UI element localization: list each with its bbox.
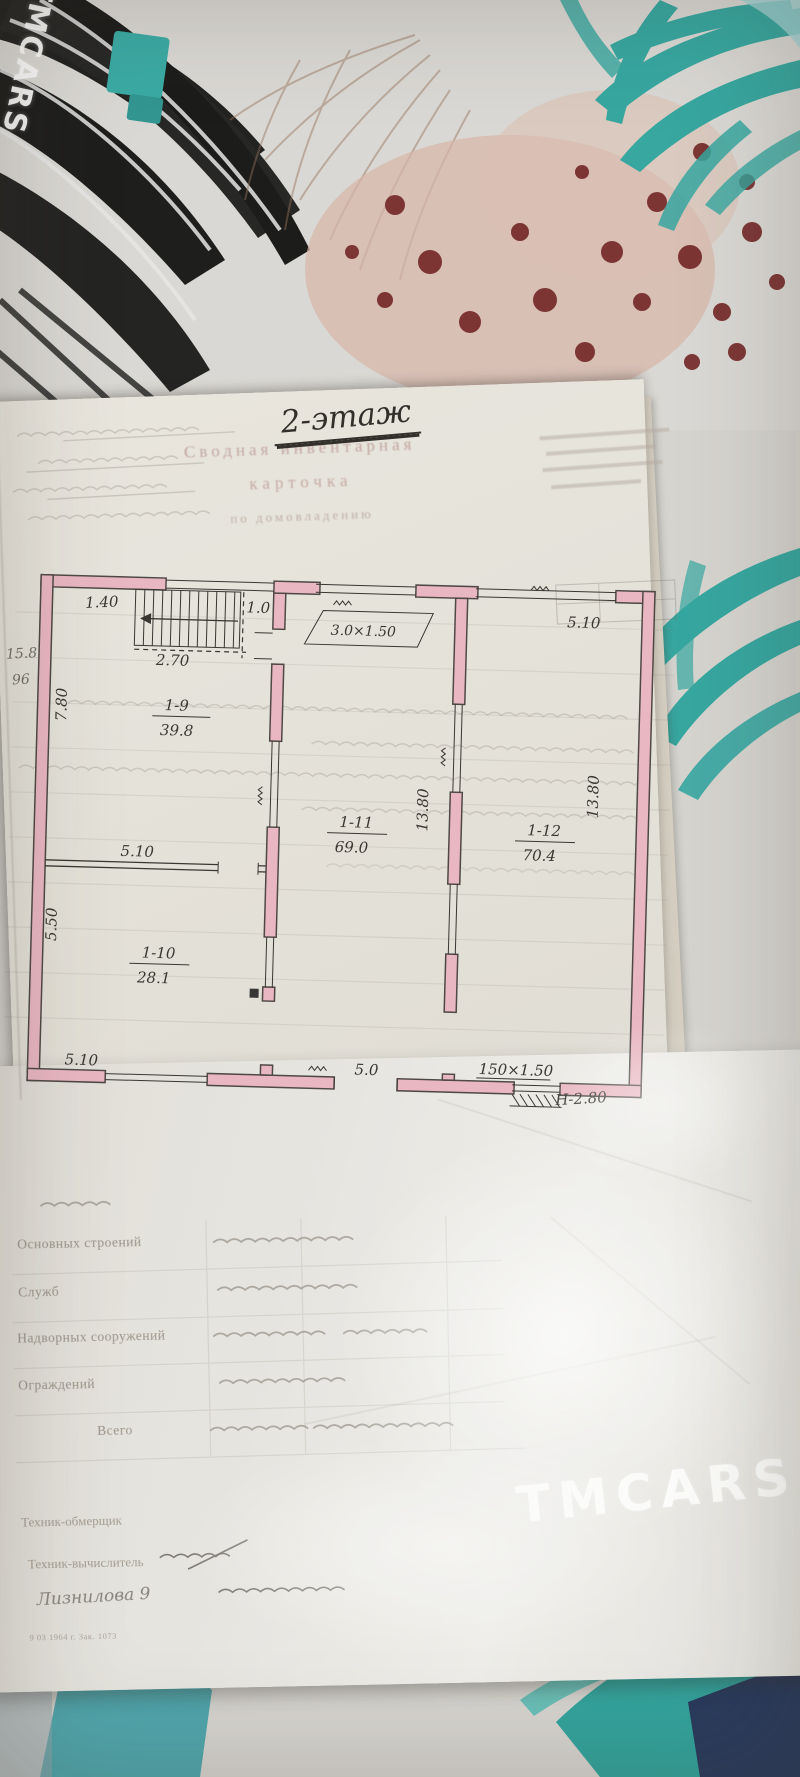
svg-text:69.0: 69.0 bbox=[334, 838, 368, 857]
staircase bbox=[134, 589, 248, 658]
faint-print-line bbox=[539, 427, 669, 440]
interior-wall-a bbox=[242, 593, 285, 1076]
svg-text:70.4: 70.4 bbox=[522, 846, 556, 865]
faint-print-line bbox=[551, 479, 641, 489]
top-openings bbox=[166, 576, 616, 601]
window-dim: 5.10 bbox=[567, 613, 601, 632]
svg-text:28.1: 28.1 bbox=[136, 968, 171, 987]
dim-left-upper: 7.80 bbox=[52, 687, 71, 721]
stairs-width: 1.40 bbox=[85, 592, 120, 611]
stairs-exit: 1.0 bbox=[246, 598, 271, 617]
signature-row-label: Техник-обмерщик bbox=[21, 1513, 122, 1531]
svg-text:1-10: 1-10 bbox=[141, 944, 176, 963]
faint-print-line bbox=[543, 460, 663, 472]
form-row-label: Основных строений bbox=[17, 1234, 142, 1253]
room-1-12-label: 1-12 70.4 bbox=[514, 821, 575, 866]
dim-bottom-left: 5.10 bbox=[64, 1050, 98, 1069]
interior-wall-b bbox=[432, 598, 467, 1080]
footer-print-note: 9 03 1964 г. Зак. 1073 bbox=[29, 1631, 117, 1643]
partition-wall bbox=[45, 857, 266, 875]
photo-of-inventory-card: Сводная инвентарная карточка по домовлад… bbox=[0, 0, 800, 1777]
balcony-size-label: 3.0×1.50 bbox=[331, 623, 397, 641]
form-row-label: Ограждений bbox=[18, 1376, 95, 1394]
dim-depth-right: 13.80 bbox=[584, 774, 603, 818]
svg-text:1-12: 1-12 bbox=[527, 821, 561, 840]
glare-highlight bbox=[540, 1020, 780, 1190]
signature-row-label: Техник-вычислитель bbox=[28, 1554, 144, 1572]
form-row-label: Всего bbox=[97, 1422, 133, 1439]
door-pivot-mark bbox=[250, 989, 259, 998]
svg-text:39.8: 39.8 bbox=[160, 721, 194, 740]
room-labels: 1-9 39.8 1-10 28.1 1-11 69.0 1-12 bbox=[129, 695, 579, 998]
dim-left-lower: 5.50 bbox=[42, 907, 61, 941]
dim-bottom-mid: 5.0 bbox=[354, 1061, 379, 1080]
stairs-run: 2.70 bbox=[155, 651, 190, 670]
form-row-label: Служб bbox=[18, 1284, 59, 1301]
dim-partition: 5.10 bbox=[120, 842, 154, 861]
svg-text:1-11: 1-11 bbox=[339, 813, 373, 832]
teal-patch bbox=[106, 30, 170, 99]
stairs-direction-arrow bbox=[140, 613, 151, 624]
room-1-11-label: 1-11 69.0 bbox=[326, 813, 387, 858]
balcony-annotation: 3.0×1.50 bbox=[304, 600, 433, 648]
svg-text:1-9: 1-9 bbox=[164, 696, 189, 715]
form-row-label: Надворных сооружений bbox=[17, 1328, 166, 1347]
card-header: Сводная инвентарная карточка по домовлад… bbox=[0, 381, 696, 585]
dim-depth-mid: 13.80 bbox=[413, 788, 432, 832]
faint-print-line bbox=[546, 444, 656, 455]
room-1-10-label: 1-10 28.1 bbox=[129, 943, 190, 988]
